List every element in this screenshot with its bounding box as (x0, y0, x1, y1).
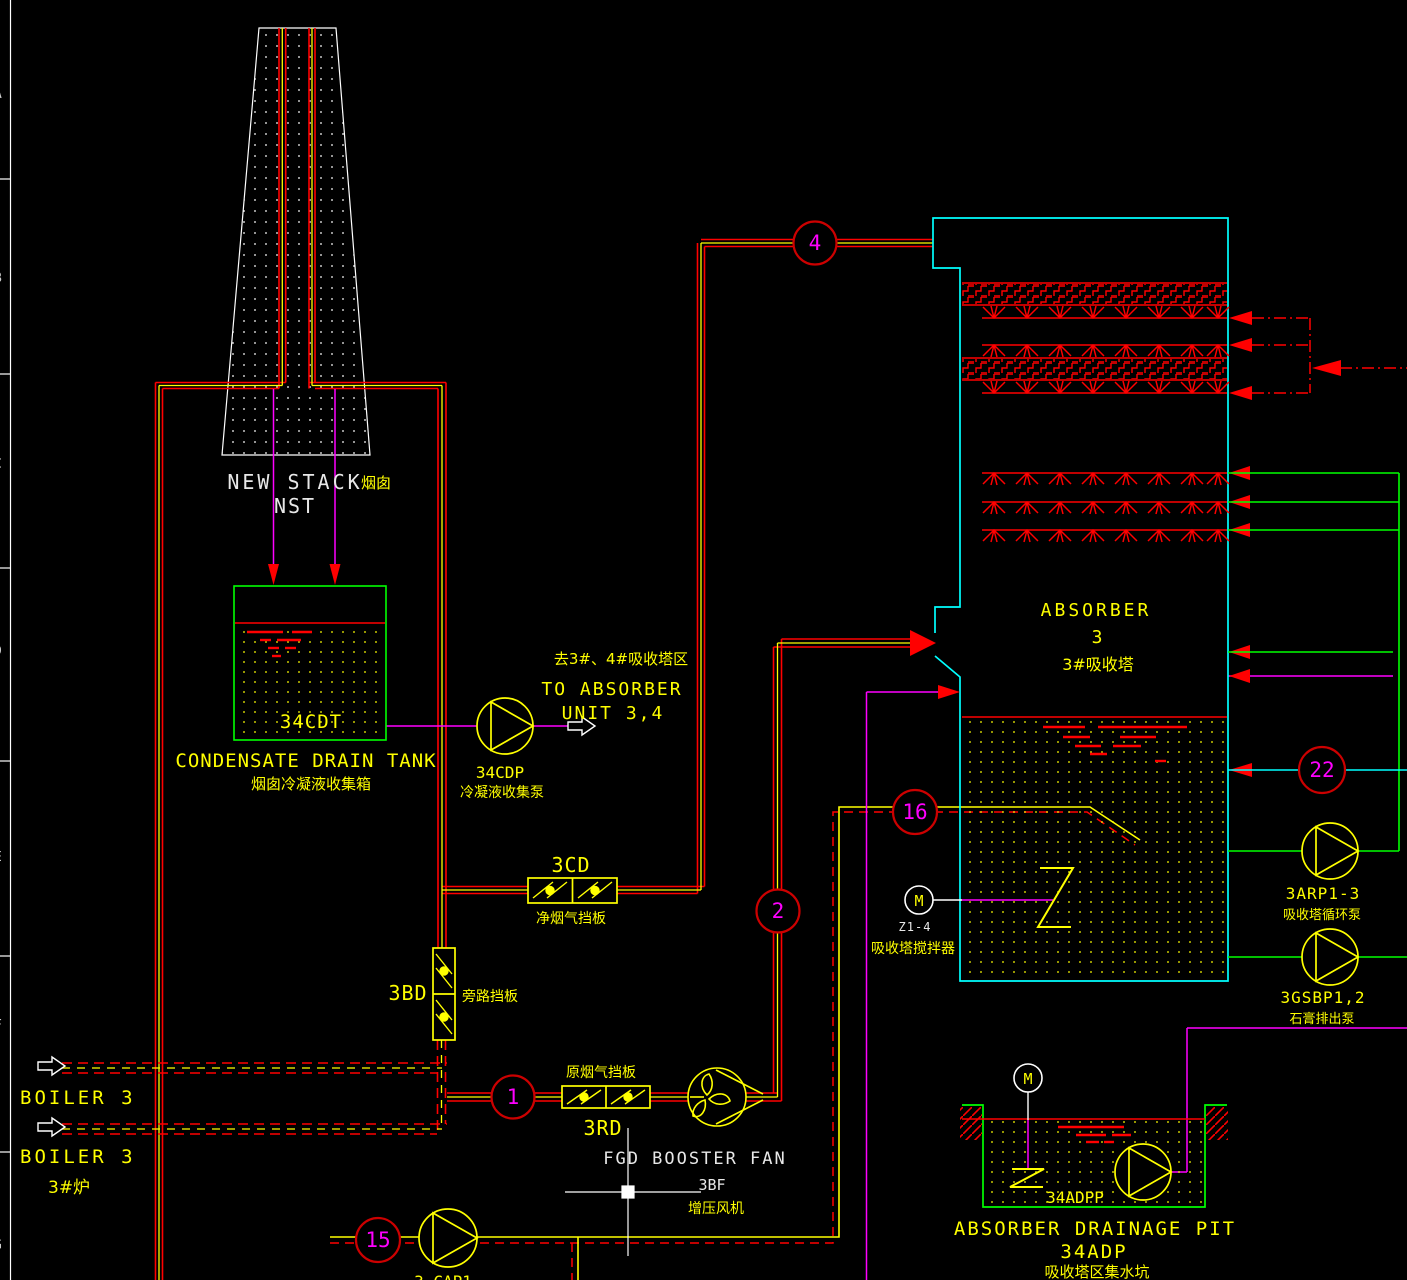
pit-name-en: ABSORBER DRAINAGE PIT (954, 1218, 1236, 1240)
recirculation-pump-3arp[interactable] (1302, 823, 1358, 879)
pit-pump-34adpp[interactable] (1115, 1144, 1171, 1200)
absorber-name-en: ABSORBER (1041, 600, 1152, 621)
row-letter: D (0, 644, 2, 659)
absorber-name-cn: 3#吸收塔 (1062, 655, 1134, 674)
gsbp-code: 3GSBP1,2 (1280, 988, 1365, 1007)
damper-3cd-cn: 净烟气挡板 (536, 911, 606, 927)
stream-tag-1[interactable]: 1 (492, 1076, 535, 1119)
boiler-label-2: BOILER 3 (20, 1146, 136, 1168)
pit-code: 34ADP (1060, 1241, 1127, 1263)
row-letter: C (0, 457, 2, 472)
absorber-number: 3 (1092, 627, 1103, 648)
svg-text:15: 15 (365, 1228, 390, 1252)
arp-code: 3ARP1-3 (1286, 884, 1360, 903)
gsbp-name-cn: 石膏排出泵 (1289, 1011, 1354, 1027)
stream-tag-2[interactable]: 2 (757, 890, 800, 933)
tank-name-cn: 烟囱冷凝液收集箱 (251, 775, 371, 793)
boiler-unit-cn: 3#炉 (48, 1178, 90, 1198)
svg-text:22: 22 (1309, 758, 1334, 782)
row-letter: G (0, 1238, 2, 1253)
cap-code: 3-CAP1 (414, 1272, 472, 1280)
stack-name-en: NEW STACK (227, 470, 362, 494)
pit-pump-code: 34ADPP (1046, 1188, 1104, 1207)
new-stack-symbol[interactable] (222, 28, 370, 455)
row-letter: A (0, 87, 2, 102)
agitator-code: Z1-4 (899, 920, 932, 934)
cad-drawing-canvas: A B C D E F G (0, 0, 1407, 1280)
damper-3cd-code: 3CD (551, 853, 590, 877)
damper-3bd-cn: 旁路挡板 (462, 988, 518, 1005)
route-line1: TO ABSORBER (541, 679, 682, 700)
agitator-name-cn: 吸收塔搅拌器 (871, 941, 955, 957)
sheet-border (0, 0, 11, 1280)
damper-3rd-cn: 原烟气挡板 (566, 1065, 636, 1081)
absorber-spray-headers (982, 306, 1229, 542)
motor-label: M (1023, 1070, 1032, 1088)
arp-name-cn: 吸收塔循环泵 (1283, 908, 1361, 923)
stack-name-cn: 烟囱 (361, 474, 391, 492)
stream-tag-15[interactable]: 15 (356, 1218, 400, 1262)
motor-label: M (914, 892, 923, 910)
damper-3cd[interactable] (528, 878, 617, 903)
absorber-slurry-pool (962, 717, 1227, 979)
pit-name-cn: 吸收塔区集水坑 (1044, 1263, 1149, 1280)
damper-3rd-code: 3RD (583, 1116, 622, 1140)
cdp-name-cn: 冷凝液收集泵 (460, 784, 544, 801)
air-blower-pump-3cap[interactable] (419, 1209, 477, 1267)
stream-tag-22[interactable]: 22 (1299, 747, 1345, 793)
cdp-code: 34CDP (476, 763, 524, 782)
svg-text:16: 16 (902, 800, 927, 824)
damper-3rd[interactable] (562, 1086, 650, 1108)
route-cn: 去3#、4#吸收塔区 (554, 650, 688, 668)
sheet-row-letters: A B C D E F G (0, 87, 2, 1253)
demister-wash-lines (1252, 318, 1407, 393)
row-letter: E (0, 850, 2, 865)
stream-tag-16[interactable]: 16 (893, 790, 937, 834)
damper-3bd-code: 3BD (388, 981, 427, 1005)
fan-name-en: FGD BOOSTER FAN (603, 1149, 787, 1169)
condensate-and-drain-lines (274, 389, 1407, 1280)
svg-text:4: 4 (809, 231, 822, 255)
fan-code: 3BF (698, 1176, 725, 1194)
row-letter: B (0, 271, 2, 286)
svg-text:2: 2 (772, 899, 785, 923)
stream-tag-4[interactable]: 4 (794, 222, 837, 265)
tank-code: 34CDT (280, 711, 342, 733)
row-letter: F (0, 1018, 2, 1033)
wash-line-arrows (1229, 311, 1341, 400)
tank-inlet-arrows (268, 564, 341, 585)
gypsum-pump-3gsbp[interactable] (1302, 929, 1358, 985)
condensate-pump-34cdp[interactable] (477, 698, 533, 754)
boiler-label-1: BOILER 3 (20, 1087, 136, 1109)
svg-text:1: 1 (507, 1085, 520, 1109)
absorber-demisters (962, 283, 1227, 380)
stack-code: NST (274, 494, 316, 518)
route-line2: UNIT 3,4 (562, 703, 665, 724)
tank-name-en: CONDENSATE DRAIN TANK (175, 750, 436, 772)
damper-3bd[interactable] (433, 948, 455, 1040)
fan-name-cn: 增压风机 (688, 1201, 744, 1217)
